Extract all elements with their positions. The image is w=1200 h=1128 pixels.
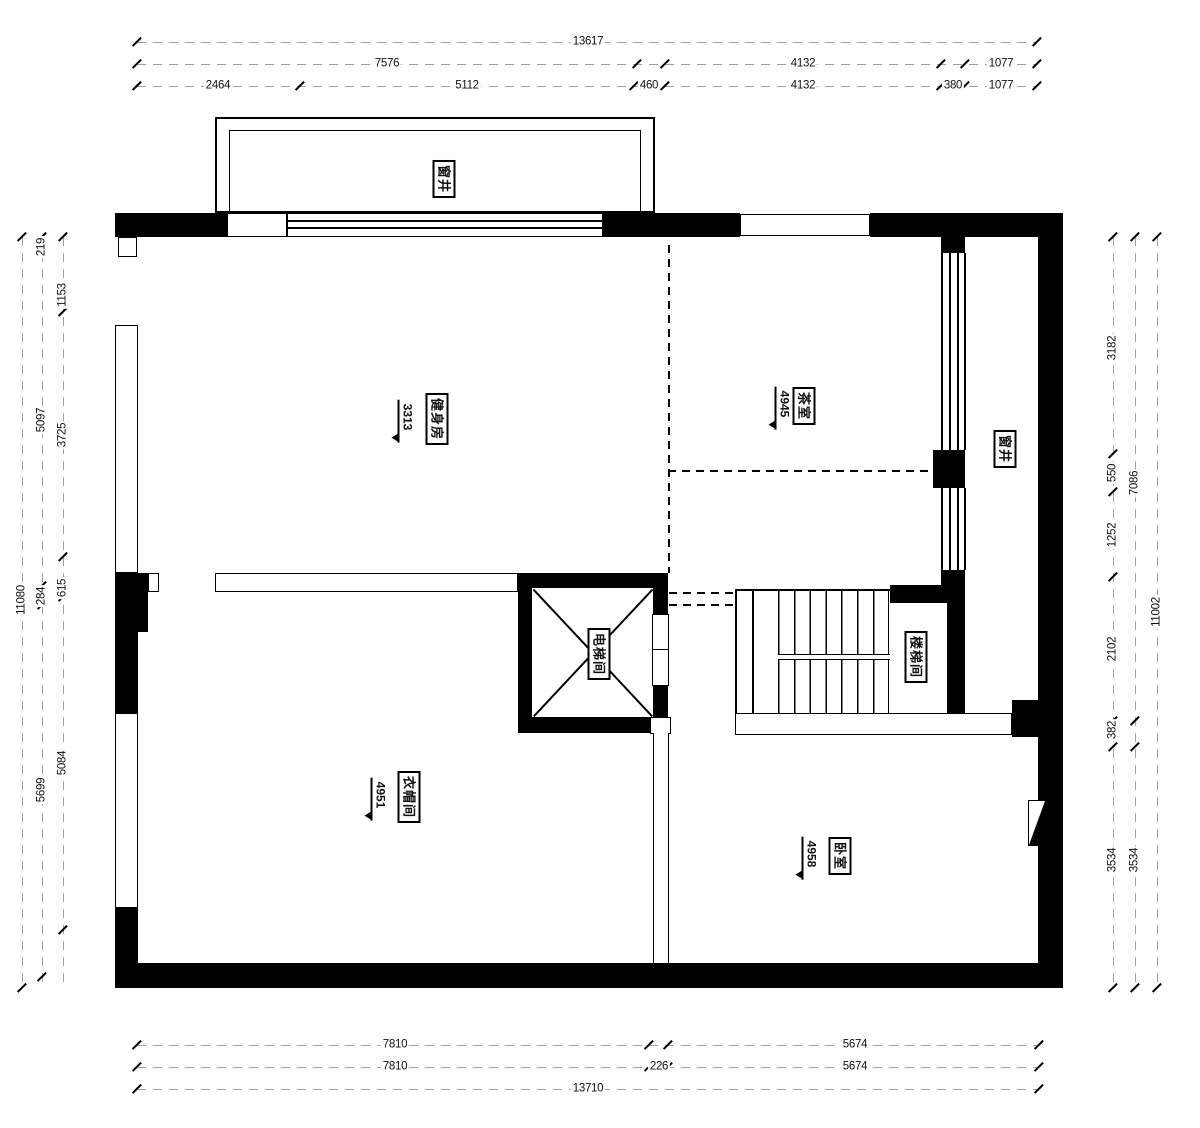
room-label-cloakroom: 衣帽间 — [398, 771, 421, 823]
floor-plan: 13617 7576 4132 1077 2464 5112 460 4132 … — [0, 0, 1200, 1128]
room-label-gym: 健身房 — [426, 393, 449, 445]
dim-value: 1077 — [987, 80, 1015, 93]
dim-tick — [1032, 59, 1042, 69]
dim-value: 5674 — [841, 1039, 869, 1052]
pier-right-mid — [933, 450, 965, 488]
window-strip-line — [964, 488, 966, 570]
wall-cloakroom-bedroom — [653, 733, 669, 963]
room-name: 茶室 — [793, 387, 816, 425]
dim-tick — [1034, 1040, 1044, 1050]
level-triangle-icon — [365, 810, 373, 820]
wall-left-mid — [115, 632, 138, 713]
dim-tick — [1108, 983, 1118, 993]
dim-value: 7810 — [381, 1061, 409, 1074]
level-value: 4951 — [374, 782, 388, 809]
level-marker-gym: 3313 — [398, 400, 417, 443]
dim-value: 3534 — [1107, 846, 1120, 874]
room-name: 健身房 — [426, 393, 449, 445]
level-triangle-icon — [392, 432, 400, 442]
room-label-window-well-right: 窗井 — [994, 430, 1017, 468]
dim-value: 13710 — [571, 1083, 605, 1096]
dim-tick — [1032, 37, 1042, 47]
dim-value: 4132 — [789, 58, 817, 71]
pier-box-top-left — [118, 237, 137, 257]
dim-value: 3182 — [1107, 334, 1120, 362]
elevator-door — [652, 614, 669, 686]
dim-line — [42, 237, 43, 988]
dim-tick — [1152, 983, 1162, 993]
window-left-upper — [115, 325, 138, 573]
dim-value: 1077 — [987, 58, 1015, 71]
wall-top-right — [870, 213, 1063, 237]
dim-value: 13617 — [571, 36, 605, 49]
opening-top-right — [740, 214, 870, 236]
room-label-window-well-top: 窗井 — [433, 160, 456, 198]
window-strip-line — [957, 488, 959, 570]
dim-value: 1252 — [1107, 521, 1120, 549]
dashed-link-lower — [669, 604, 735, 606]
dim-value: 219 — [36, 236, 49, 258]
dim-value: 550 — [1107, 462, 1120, 484]
wall-stairwell-right — [947, 603, 965, 713]
dim-tick — [1130, 983, 1140, 993]
dim-value: 1153 — [57, 281, 70, 309]
window-strip-line — [949, 253, 951, 450]
dashed-partition-vertical — [668, 245, 670, 573]
dim-value: 5674 — [841, 1061, 869, 1074]
window-strip-line — [949, 488, 951, 570]
level-value: 4945 — [778, 391, 792, 418]
room-name: 窗井 — [994, 430, 1017, 468]
wall-top-mid — [603, 213, 740, 237]
dim-value: 7086 — [1129, 469, 1142, 497]
wall-notch-left — [148, 573, 159, 592]
dim-value: 5097 — [36, 406, 49, 434]
room-label-tea-room: 茶室 — [793, 387, 816, 425]
window-mullion — [287, 220, 603, 222]
room-name: 楼梯间 — [905, 631, 928, 683]
wall-top-left — [115, 213, 227, 237]
dim-tick — [1034, 1062, 1044, 1072]
wall-left-upper — [115, 573, 148, 632]
wall-left-lower — [115, 905, 138, 963]
elevator-door-divider — [652, 649, 669, 650]
dim-line — [137, 1067, 1039, 1068]
level-triangle-icon — [796, 869, 804, 879]
window-top — [287, 213, 603, 237]
room-name: 窗井 — [433, 160, 456, 198]
window-strip-line — [941, 488, 943, 570]
dim-value: 382 — [1107, 719, 1120, 741]
room-label-stairwell: 楼梯间 — [905, 631, 928, 683]
dim-value: 11002 — [1151, 595, 1164, 629]
wall-right — [1038, 237, 1063, 963]
room-name: 卧室 — [829, 837, 852, 875]
dashed-link-upper — [669, 592, 735, 594]
dim-value: 5699 — [36, 776, 49, 804]
window-strip-line — [964, 253, 966, 450]
window-strip-line — [957, 253, 959, 450]
pier-right-top — [941, 237, 965, 253]
window-strip-line — [941, 253, 943, 450]
level-marker-cloakroom: 4951 — [371, 778, 390, 821]
dim-value: 615 — [57, 577, 70, 599]
wall-bottom — [115, 963, 1063, 988]
window-left-lower — [115, 713, 138, 908]
wall-window-well-bottom — [1012, 700, 1063, 737]
dim-value: 380 — [942, 80, 964, 93]
dim-tick — [1034, 1084, 1044, 1094]
dim-value: 7810 — [381, 1039, 409, 1052]
dim-line — [137, 86, 1037, 87]
dim-value: 2102 — [1107, 635, 1120, 663]
dim-value: 2464 — [204, 80, 232, 93]
door-right-wall — [1028, 800, 1046, 846]
dim-line — [1135, 237, 1136, 988]
dim-value: 11080 — [16, 583, 29, 617]
dim-value: 460 — [638, 80, 660, 93]
room-label-bedroom: 卧室 — [829, 837, 852, 875]
dim-value: 284 — [36, 585, 49, 607]
dim-line — [137, 1045, 1039, 1046]
room-name: 衣帽间 — [398, 771, 421, 823]
door-swing — [1029, 801, 1045, 845]
dim-line — [137, 64, 1037, 65]
level-marker-tea-room: 4945 — [775, 387, 794, 430]
lintel-stairwell — [890, 585, 965, 603]
dim-value: 226 — [648, 1061, 670, 1074]
level-value: 4958 — [805, 841, 819, 868]
level-triangle-icon — [769, 419, 777, 429]
dim-tick — [17, 983, 27, 993]
stair-edge-line — [752, 589, 754, 713]
dim-value: 4132 — [789, 80, 817, 93]
dim-tick — [1032, 81, 1042, 91]
dim-line — [63, 237, 64, 988]
window-mullion — [287, 227, 603, 229]
room-name: 电梯间 — [588, 628, 611, 680]
dashed-partition-horizontal — [668, 470, 941, 472]
wall-gym-cloakroom — [215, 573, 518, 592]
room-label-elevator: 电梯间 — [588, 628, 611, 680]
dim-value: 5112 — [453, 80, 481, 93]
dim-value: 3725 — [57, 421, 70, 449]
level-marker-bedroom: 4958 — [802, 837, 821, 880]
level-value: 3313 — [401, 404, 415, 431]
stair-handrail — [778, 654, 890, 660]
stair-treads — [778, 589, 889, 713]
dim-value: 7576 — [373, 58, 401, 71]
dim-value: 3534 — [1129, 846, 1142, 874]
door-opening-top — [227, 213, 287, 237]
shaft-bottom-opening — [650, 717, 671, 734]
dim-value: 5084 — [57, 749, 70, 777]
stair-landing — [735, 713, 1012, 735]
